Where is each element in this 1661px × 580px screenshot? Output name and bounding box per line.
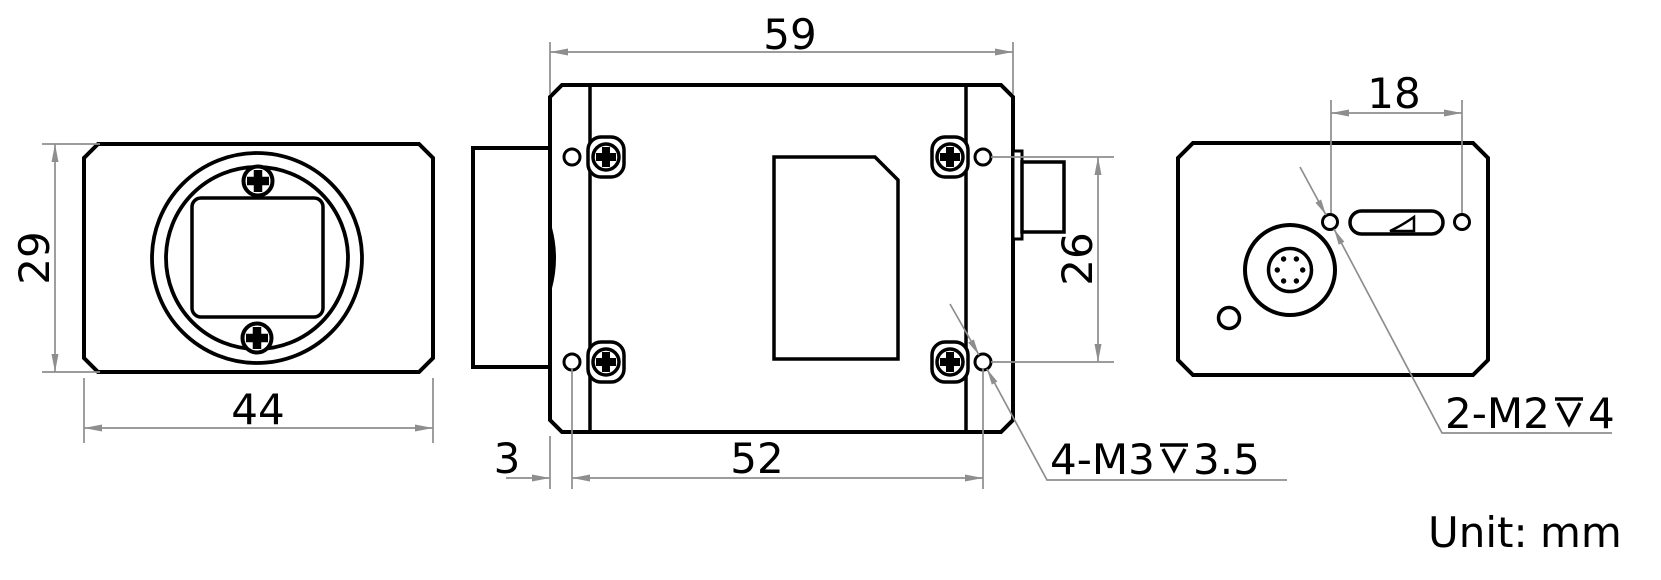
- dimension-width: 44: [84, 378, 433, 443]
- mount-hole-m3: [975, 149, 991, 165]
- arrow-right-icon: [995, 49, 1013, 56]
- connector-pin: [1281, 256, 1286, 261]
- connector-pin: [1281, 278, 1286, 283]
- arrow-left-icon: [572, 475, 590, 482]
- dimension-label: 18: [1367, 69, 1420, 118]
- camera-front-view: 29 44: [10, 144, 433, 443]
- connector-pin: [1275, 267, 1280, 272]
- thread-note-depth: 3.5: [1193, 435, 1260, 484]
- camera-back-view: 18 2-M2 4: [1178, 69, 1615, 438]
- dimension-label: 59: [763, 10, 816, 59]
- mount-hole-m2: [1455, 215, 1470, 230]
- mount-hole-m3: [975, 354, 991, 370]
- camera-dimension-drawing: 29 44: [0, 0, 1661, 580]
- io-connector-body: [1022, 162, 1064, 232]
- dimension-label: 44: [231, 385, 284, 434]
- arrow-left-icon: [550, 49, 568, 56]
- dimension-label: 29: [10, 231, 59, 284]
- mount-hole-m3: [564, 149, 580, 165]
- thread-note-depth: 4: [1588, 389, 1615, 438]
- arrow-up-icon: [52, 144, 59, 162]
- connector-pin: [1300, 267, 1305, 272]
- dimension-label: 3: [494, 434, 521, 483]
- depth-symbol-vee: [1163, 449, 1185, 470]
- depth-symbol-icon: [1160, 445, 1188, 470]
- connector-pin: [1294, 256, 1299, 261]
- screw-icon: [932, 137, 968, 177]
- thread-note-prefix: 2-M2: [1445, 389, 1550, 438]
- screw-icon: [243, 324, 272, 353]
- arrow-up-icon: [1095, 157, 1102, 175]
- arrow-right-icon: [1444, 110, 1462, 117]
- mechanical-drawing-canvas: 29 44: [0, 0, 1661, 580]
- dimension-label: 52: [730, 434, 783, 483]
- arrow-left-icon: [84, 425, 102, 432]
- arrow-left-icon: [1331, 110, 1349, 117]
- arrow-right-icon: [532, 475, 550, 482]
- depth-symbol-icon: [1555, 399, 1583, 424]
- screw-icon: [588, 137, 624, 177]
- sensor-window: [192, 198, 323, 317]
- unit-label: Unit:: [1428, 508, 1528, 557]
- unit-value: mm: [1540, 508, 1622, 557]
- camera-side-view: 59 3 52 26 4-M3: [473, 10, 1287, 489]
- arrow-right-icon: [415, 425, 433, 432]
- screw-icon: [588, 342, 624, 382]
- arrow-down-icon: [1095, 344, 1102, 362]
- mount-hole-m2: [1323, 215, 1338, 230]
- connector-pin: [1294, 278, 1299, 283]
- depth-symbol-vee: [1558, 403, 1580, 424]
- arrow-down-icon: [52, 354, 59, 372]
- thread-note-prefix: 4-M3: [1050, 435, 1155, 484]
- dimension-label: 26: [1053, 232, 1102, 285]
- arrow-right-icon: [965, 475, 983, 482]
- card-slot: [1350, 211, 1443, 234]
- screw-icon: [244, 167, 273, 196]
- dimension-front-offset: 3: [494, 434, 550, 489]
- mount-hole-m3: [564, 354, 580, 370]
- lens-barrel: [473, 148, 550, 367]
- screw-icon: [932, 342, 968, 382]
- dimension-length: 59: [550, 10, 1013, 94]
- unit-note: Unit: mm: [1428, 508, 1622, 557]
